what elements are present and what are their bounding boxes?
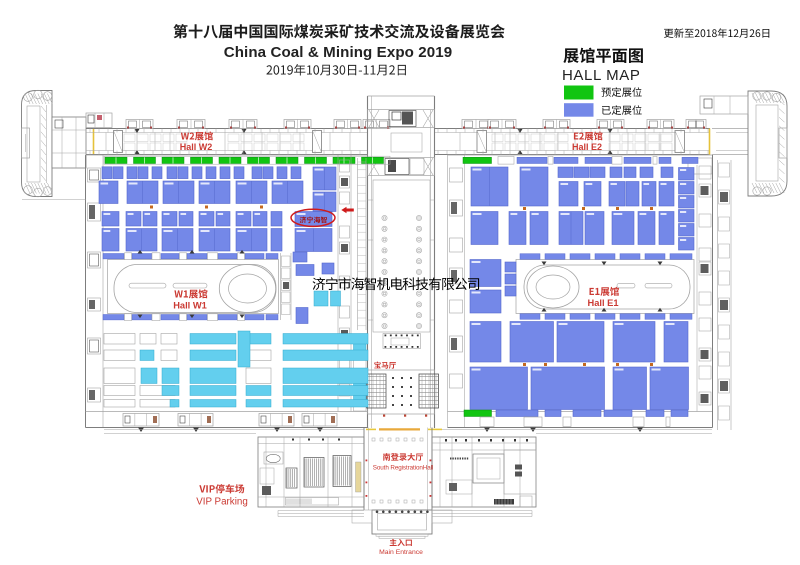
svg-text:HALL MAP: HALL MAP [562, 67, 640, 84]
svg-text:Main Entrance: Main Entrance [379, 549, 423, 556]
svg-text:Hall W2: Hall W2 [180, 142, 213, 152]
svg-text:Hall E1: Hall E1 [587, 298, 618, 308]
svg-text:Hall E2: Hall E2 [572, 142, 602, 152]
svg-text:Hall W1: Hall W1 [173, 301, 207, 311]
svg-text:China Coal & Mining Expo 2019: China Coal & Mining Expo 2019 [224, 44, 453, 61]
svg-text:South RegistrationHall: South RegistrationHall [373, 465, 433, 472]
svg-text:VIP Parking: VIP Parking [196, 497, 248, 508]
